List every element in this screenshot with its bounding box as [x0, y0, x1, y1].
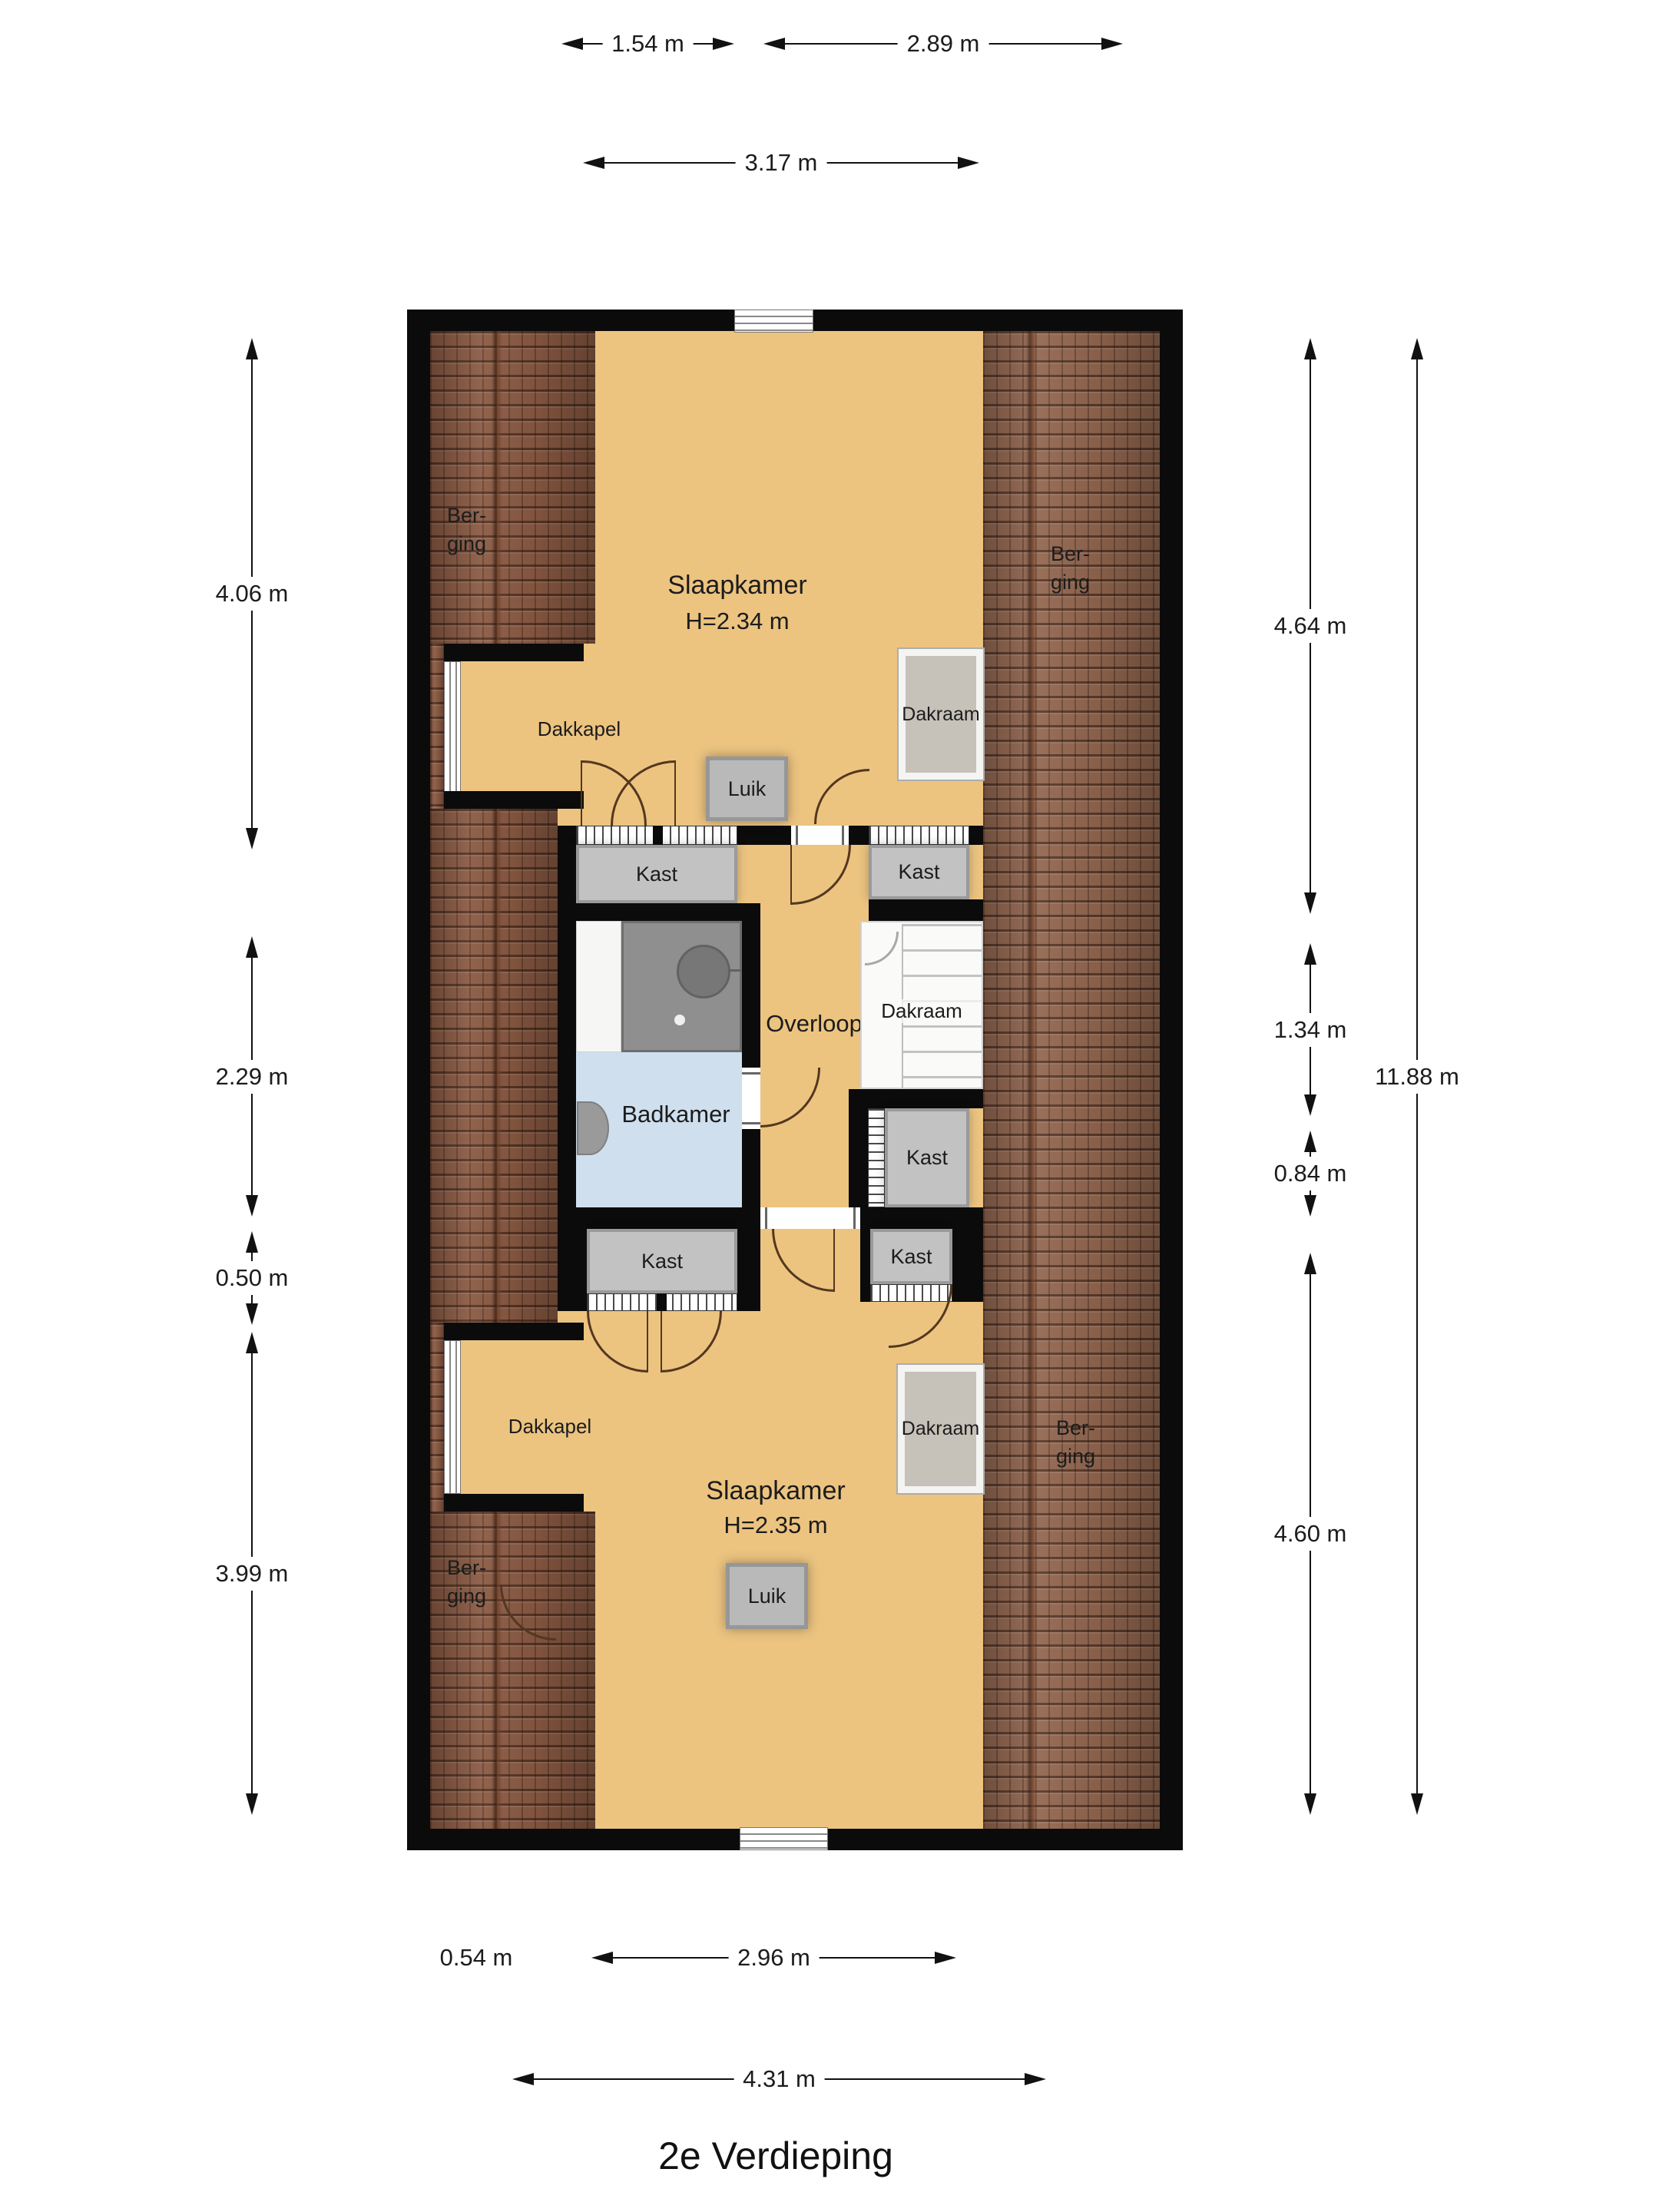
dim-label: 4.06 m [207, 577, 298, 611]
wall-segment [742, 921, 760, 1207]
closet-box: Kast [587, 1229, 737, 1293]
storage-label-line2: ging [447, 532, 486, 555]
wall-segment [860, 1207, 870, 1302]
hatch-box: Luik [706, 757, 788, 821]
arrow-up-icon [246, 1332, 258, 1353]
storage-label-line2: ging [1051, 571, 1090, 594]
dormer-label: Dakkapel [473, 1415, 627, 1439]
dim-label: 4.64 m [1265, 609, 1356, 643]
arrow-up-icon [1304, 1131, 1316, 1152]
arrow-up-icon [1411, 338, 1423, 359]
door-leaf [581, 760, 582, 826]
roof-ridge [492, 1512, 502, 1829]
room-ceiling-top: H=2.34 m [622, 608, 853, 635]
door-opening [742, 1068, 760, 1129]
arrow-right-icon [935, 1952, 956, 1964]
arrow-up-icon [1304, 1253, 1316, 1274]
arrow-right-icon [1101, 38, 1123, 50]
closet-box: Kast [885, 1108, 969, 1207]
stairwell: Dakraam [860, 921, 983, 1089]
dim-label: 3.99 m [207, 1557, 298, 1591]
roofwindow-box: Dakraam [898, 1365, 983, 1493]
wall-segment [444, 1494, 584, 1512]
dim-label: 1.54 m [602, 27, 694, 61]
arrow-down-icon [246, 1793, 258, 1815]
arrow-right-icon [713, 38, 734, 50]
storage-label: Ber- ging [447, 1554, 486, 1611]
dim-right-11-88: 11.88 m [1405, 338, 1429, 1815]
wall-segment [558, 1207, 587, 1311]
dim-bottom-2-96: 2.96 m [591, 1945, 956, 1970]
wall-segment [737, 1207, 760, 1311]
dim-label: 2.96 m [728, 1941, 820, 1975]
roof-ridge [492, 809, 502, 1323]
arrow-up-icon [1304, 943, 1316, 965]
arrow-down-icon [246, 828, 258, 849]
dim-bottom-4-31: 4.31 m [512, 2067, 1046, 2091]
wall-segment [653, 826, 663, 845]
wall-segment [657, 1293, 667, 1311]
storage-label-line2: ging [447, 1584, 486, 1608]
dim-label: 2.89 m [898, 27, 989, 61]
wall-segment [849, 1089, 983, 1108]
roof-strip [430, 1323, 444, 1512]
storage-label-line1: Ber- [447, 504, 486, 527]
shower-drain [674, 1015, 685, 1025]
dim-label: 11.88 m [1366, 1060, 1469, 1094]
wall-segment [444, 644, 584, 661]
closet-label: Kast [898, 860, 939, 884]
storage-label-line1: Ber- [447, 1556, 486, 1579]
shower-arm [728, 969, 742, 972]
dim-label: 3.17 m [736, 146, 827, 180]
dim-bottom-0-54: 0.54 m [426, 1944, 526, 1972]
arrow-up-icon [246, 936, 258, 958]
room-label-slaapkamer-top: Slaapkamer [622, 571, 853, 601]
storage-label-line1: Ber- [1051, 542, 1090, 565]
arrow-down-icon [1304, 1793, 1316, 1815]
arrow-left-icon [583, 157, 604, 169]
arrow-left-icon [561, 38, 583, 50]
wall-segment [869, 899, 983, 921]
storage-label: Ber- ging [1051, 540, 1090, 597]
dim-right-4-64: 4.64 m [1298, 338, 1323, 914]
closet-label: Kast [636, 863, 677, 886]
dakkapel-window [444, 1340, 461, 1494]
wall-segment [952, 1207, 983, 1302]
hatch-label: Luik [728, 777, 767, 801]
arrow-left-icon [763, 38, 785, 50]
roofwindow-label: Dakraam [862, 999, 982, 1023]
arrow-right-icon [958, 157, 979, 169]
closet-box: Kast [869, 845, 969, 899]
roof-ridge [1026, 331, 1037, 1829]
dim-top-3-17: 3.17 m [583, 151, 979, 175]
wall-segment [558, 845, 576, 1207]
dormer-label: Dakkapel [502, 717, 656, 741]
dim-right-4-60: 4.60 m [1298, 1253, 1323, 1815]
dim-label: 2.29 m [207, 1060, 298, 1094]
door-leaf [674, 760, 676, 826]
dim-left-0-50: 0.50 m [240, 1231, 264, 1325]
arrow-down-icon [246, 1195, 258, 1217]
closet-box: Kast [576, 845, 737, 903]
page-title: 2e Verdieping [499, 2134, 1052, 2178]
arrow-up-icon [246, 1231, 258, 1253]
dim-label: 0.84 m [1265, 1157, 1356, 1190]
wall-segment [849, 1108, 868, 1207]
arrow-down-icon [246, 1303, 258, 1325]
arrow-left-icon [512, 2073, 534, 2085]
hatch-label: Luik [748, 1584, 786, 1608]
arrow-left-icon [591, 1952, 613, 1964]
window-bottom [740, 1827, 828, 1850]
door-leaf [661, 1311, 662, 1373]
roofwindow-label: Dakraam [902, 704, 979, 726]
arrow-right-icon [1025, 2073, 1046, 2085]
roof-strip [430, 644, 444, 809]
storage-label: Ber- ging [447, 502, 486, 558]
door-opening [760, 1207, 860, 1229]
dim-label: 4.60 m [1265, 1517, 1356, 1551]
arrow-up-icon [1304, 338, 1316, 359]
closet-doors [868, 1108, 885, 1207]
roof-strip [430, 331, 595, 644]
wall-segment [444, 791, 584, 809]
stair-rail [865, 932, 899, 965]
bathroom-counter [576, 921, 621, 1052]
dim-top-2-89: 2.89 m [763, 31, 1123, 56]
dim-left-4-06: 4.06 m [240, 338, 264, 849]
storage-label-line1: Ber- [1056, 1416, 1095, 1439]
arrow-up-icon [246, 338, 258, 359]
dim-left-2-29: 2.29 m [240, 936, 264, 1217]
shower-head-icon [677, 945, 730, 998]
door-leaf [833, 1229, 835, 1292]
floorplan-page: 1.54 m 2.89 m 3.17 m 4.06 m 2.29 m 0.50 … [0, 0, 1659, 2212]
arrow-down-icon [1411, 1793, 1423, 1815]
closet-box: Kast [870, 1229, 952, 1284]
hatch-box: Luik [726, 1563, 808, 1629]
floorplan: Kast Kast Badkamer Overloop Dakraam [407, 310, 1183, 1850]
roofwindow-box: Dakraam [899, 649, 983, 780]
wall-segment [558, 903, 760, 922]
arrow-down-icon [1304, 892, 1316, 914]
room-label-badkamer: Badkamer [599, 1101, 753, 1128]
dakkapel-window [444, 661, 461, 809]
arrow-down-icon [1304, 1094, 1316, 1116]
arrow-down-icon [1304, 1195, 1316, 1217]
door-leaf [647, 1311, 648, 1373]
storage-label-line2: ging [1056, 1445, 1095, 1468]
dim-right-0-84: 0.84 m [1298, 1131, 1323, 1217]
dim-top-1-54: 1.54 m [561, 31, 734, 56]
dim-left-3-99: 3.99 m [240, 1332, 264, 1815]
room-ceiling-bottom: H=2.35 m [661, 1512, 891, 1539]
closet-doors [869, 826, 969, 845]
roofwindow-label: Dakraam [902, 1418, 979, 1440]
dim-label: 0.50 m [207, 1261, 298, 1295]
closet-label: Kast [890, 1245, 932, 1269]
dim-label: 4.31 m [733, 2062, 825, 2096]
wall-segment [444, 1323, 584, 1340]
dim-label: 1.34 m [1265, 1013, 1356, 1047]
closet-label: Kast [906, 1146, 948, 1170]
room-label-slaapkamer-bottom: Slaapkamer [661, 1476, 891, 1506]
closet-label: Kast [641, 1250, 683, 1273]
door-opening [791, 826, 849, 845]
dim-right-1-34: 1.34 m [1298, 943, 1323, 1116]
door-leaf [790, 845, 792, 905]
window-top [734, 310, 813, 333]
roof-ridge [492, 331, 502, 644]
storage-label: Ber- ging [1056, 1414, 1095, 1471]
